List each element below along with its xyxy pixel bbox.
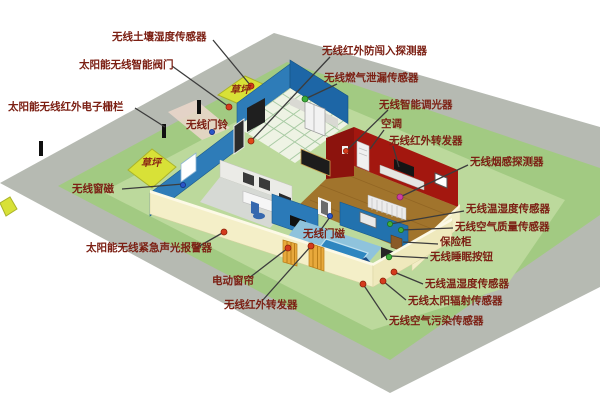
label-temp-humidity-sensor-2: 无线温湿度传感器 [425, 279, 509, 290]
sensor-dot-red [226, 104, 232, 110]
sensor-dot-green [386, 254, 392, 260]
sensor-dot-magenta [397, 194, 403, 200]
sensor-dot-red [391, 269, 397, 275]
label-safe-box: 保险柜 [440, 237, 472, 248]
label-gas-leak-sensor: 无线燃气泄漏传感器 [324, 73, 419, 84]
sensor-dot-red [308, 243, 314, 249]
sensor-dot-red [343, 148, 348, 153]
label-air-pollution-sensor: 无线空气污染传感器 [389, 316, 484, 327]
label-doorbell: 无线门铃 [186, 120, 228, 131]
sensor-dot-red [221, 229, 227, 235]
label-soil-moisture-sensor: 无线土壤湿度传感器 [112, 32, 207, 43]
sensor-dot-red [380, 278, 386, 284]
sensor-dot-red [360, 281, 366, 287]
fence-post-icon [197, 100, 201, 114]
label-sleep-button: 无线睡眠按钮 [430, 252, 493, 263]
label-air-conditioner: 空调 [381, 119, 402, 130]
label-solar-radiation-sensor: 无线太阳辐射传感器 [408, 296, 503, 307]
office-chair-seat [253, 213, 265, 219]
sensor-dot-green [398, 227, 403, 232]
label-air-quality-sensor: 无线空气质量传感器 [455, 222, 550, 233]
label-ir-repeater-bottom: 无线红外转发器 [224, 300, 298, 311]
sensor-dot-blue [327, 213, 332, 218]
label-smart-dimmer: 无线智能调光器 [379, 100, 453, 111]
sensor-dot-green [387, 221, 392, 226]
label-emergency-alarm: 太阳能无线紧急声光报警器 [86, 243, 212, 254]
fence-post-icon [39, 141, 43, 156]
label-ir-repeater-right: 无线红外转发器 [389, 136, 463, 147]
sensor-dot-green [302, 96, 308, 102]
lawn-patch-edge [0, 197, 17, 216]
sensor-dot-red [248, 138, 254, 144]
smart-home-layout-diagram: 无线土壤湿度传感器 太阳能无线智能阀门 太阳能无线红外电子栅栏 无线门铃 草坪 … [0, 0, 600, 400]
sensor-dot-blue [180, 182, 185, 187]
label-window-magnet: 无线窗磁 [72, 184, 114, 195]
sensor-dot-red [285, 245, 291, 251]
label-lawn-top: 草坪 [230, 85, 250, 96]
label-electric-curtain: 电动窗帘 [212, 276, 254, 287]
label-door-magnet: 无线门磁 [303, 229, 345, 240]
ac-unit [357, 141, 369, 171]
label-lawn-left: 草坪 [141, 158, 161, 169]
label-smoke-detector: 无线烟感探测器 [470, 157, 544, 168]
label-ir-electronic-fence: 太阳能无线红外电子栅栏 [8, 102, 124, 113]
label-smart-valve: 太阳能无线智能阀门 [79, 60, 174, 71]
label-ir-intrusion-detector: 无线红外防闯入探测器 [322, 46, 427, 57]
label-temp-humidity-sensor-1: 无线温湿度传感器 [466, 204, 550, 215]
